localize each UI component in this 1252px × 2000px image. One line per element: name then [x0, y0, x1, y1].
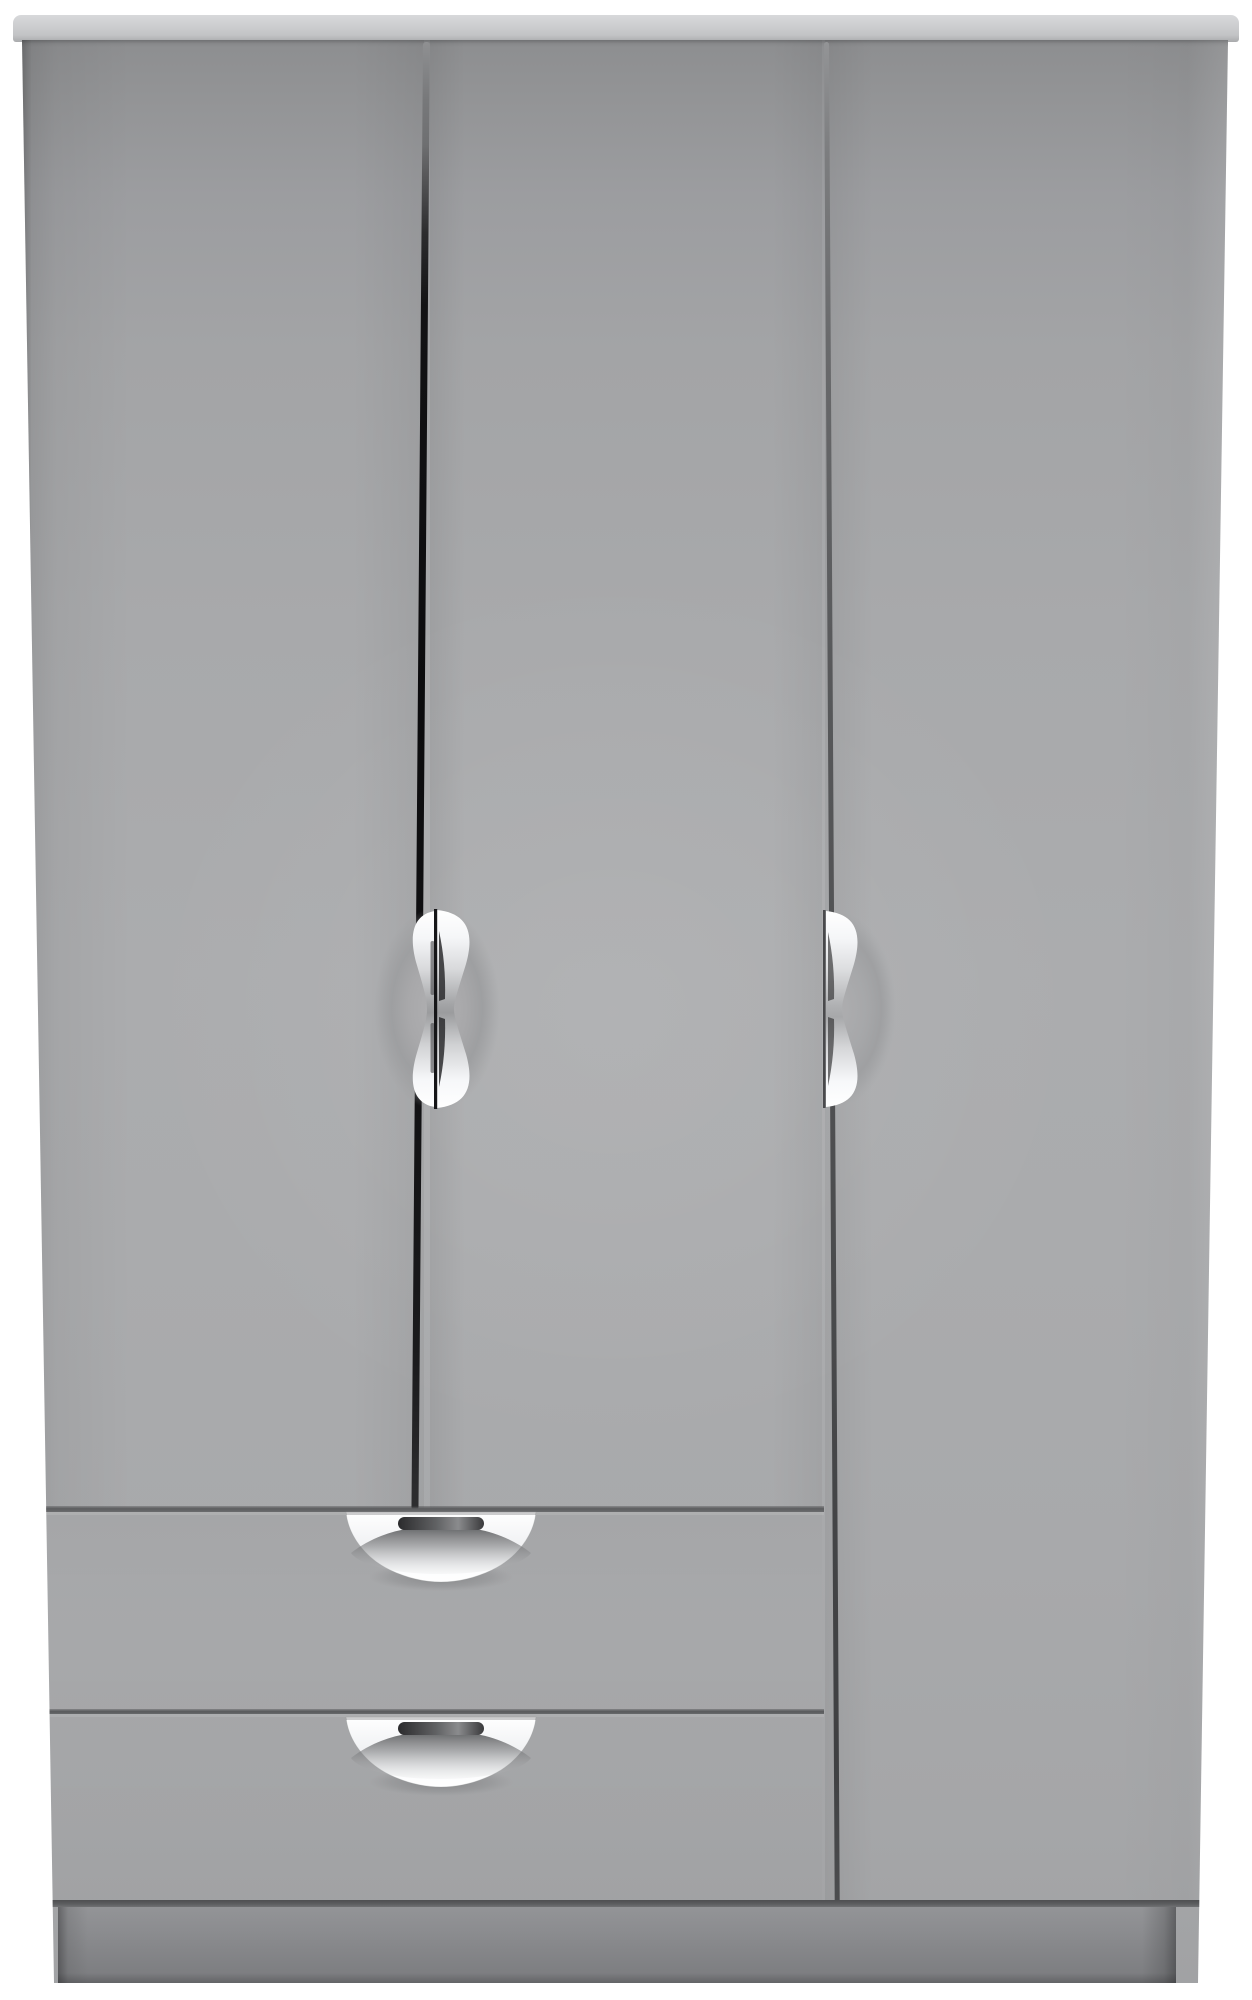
- top-drawer-handle-icon: [339, 1511, 543, 1593]
- bottom-drawer-handle-icon: [339, 1716, 543, 1798]
- left-door: [22, 40, 424, 1510]
- wardrobe-product-photo: [0, 0, 1252, 2000]
- plinth-kickboard: [58, 1907, 1176, 1983]
- center-door-handles-icon: [373, 905, 507, 1113]
- wardrobe-cornice: [13, 15, 1239, 42]
- drawer-divider-joint: [22, 1709, 824, 1714]
- base-joint: [22, 1900, 1228, 1907]
- middle-door: [430, 40, 822, 1510]
- right-door-handle-icon: [823, 906, 899, 1112]
- wardrobe-body: [22, 40, 1228, 1983]
- left-side-edge: [22, 40, 31, 1983]
